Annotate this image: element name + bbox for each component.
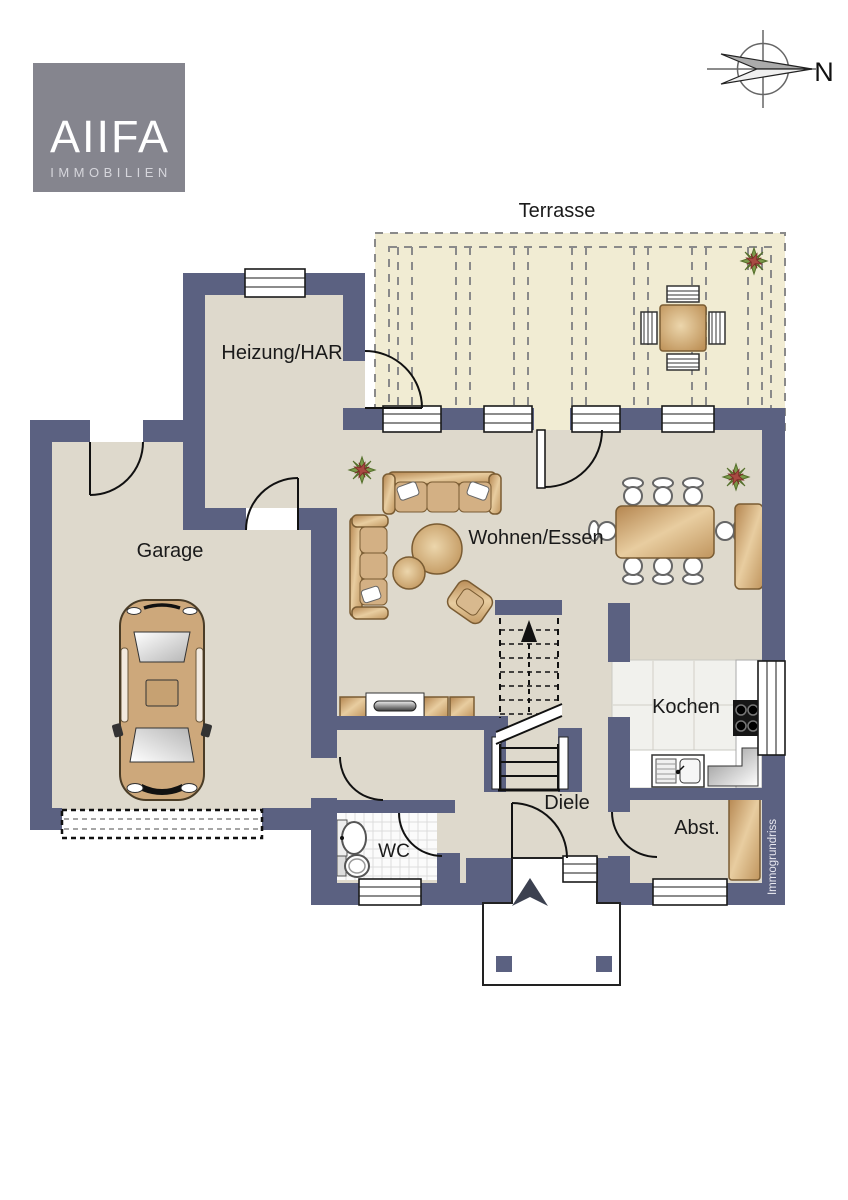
wc-sink-icon [337, 820, 366, 856]
window [359, 879, 421, 905]
kitchen-sink-icon [652, 755, 704, 787]
logo: AIIFA IMMOBILIEN [33, 63, 185, 192]
label-abstellraum: Abst. [674, 817, 720, 839]
window [245, 269, 305, 297]
window [484, 406, 532, 432]
terrace-chair [667, 286, 699, 302]
car-icon [112, 600, 213, 800]
coffee-table [393, 557, 425, 589]
floor-plan-svg: Terrasse Heizung/HAR Garage Wohnen/Essen… [0, 0, 848, 1200]
brand-tagline: IMMOBILIEN [50, 165, 172, 180]
window [563, 856, 597, 882]
terrace-door-gap [534, 408, 570, 430]
tv-icon [374, 701, 416, 711]
label-garage: Garage [137, 540, 204, 562]
dining-chair [683, 557, 703, 584]
dining-chair [653, 557, 673, 584]
cooktop-icon [733, 700, 759, 736]
porch-post [496, 956, 512, 972]
sofa-long [383, 472, 501, 514]
label-diele: Diele [544, 792, 590, 814]
north-label: N [814, 57, 834, 87]
window [758, 661, 785, 755]
dining-chair [683, 478, 703, 505]
storage-shelf [729, 795, 760, 880]
stair-side-band [559, 737, 568, 789]
label-wohnen-essen: Wohnen/Essen [468, 527, 603, 549]
terrace-chair [667, 354, 699, 370]
window [653, 879, 727, 905]
floor-plan-page: Terrasse Heizung/HAR Garage Wohnen/Essen… [0, 0, 848, 1200]
sofa-short [350, 515, 388, 619]
label-terrasse: Terrasse [519, 200, 596, 222]
heating-door-gap [343, 355, 365, 408]
toilet-icon [337, 855, 369, 877]
garage-door [62, 810, 262, 838]
terrace-chair [709, 312, 725, 344]
terrace-chair [641, 312, 657, 344]
window [572, 406, 620, 432]
dining-table [616, 506, 714, 558]
dining-chair [653, 478, 673, 505]
tv-lowboard [340, 693, 474, 720]
window [383, 406, 441, 432]
dining-chair [623, 478, 643, 505]
watermark-label: Immogrundriss [767, 819, 779, 895]
porch-post [596, 956, 612, 972]
label-kochen: Kochen [652, 696, 720, 718]
terrace-table [660, 305, 706, 351]
label-heizung: Heizung/HAR [221, 342, 342, 364]
sideboard [735, 504, 763, 589]
brand-name: AIIFA [50, 111, 170, 162]
compass-icon: N [707, 30, 834, 108]
dining-chair [623, 557, 643, 584]
window [662, 406, 714, 432]
label-wc: WC [378, 841, 410, 862]
